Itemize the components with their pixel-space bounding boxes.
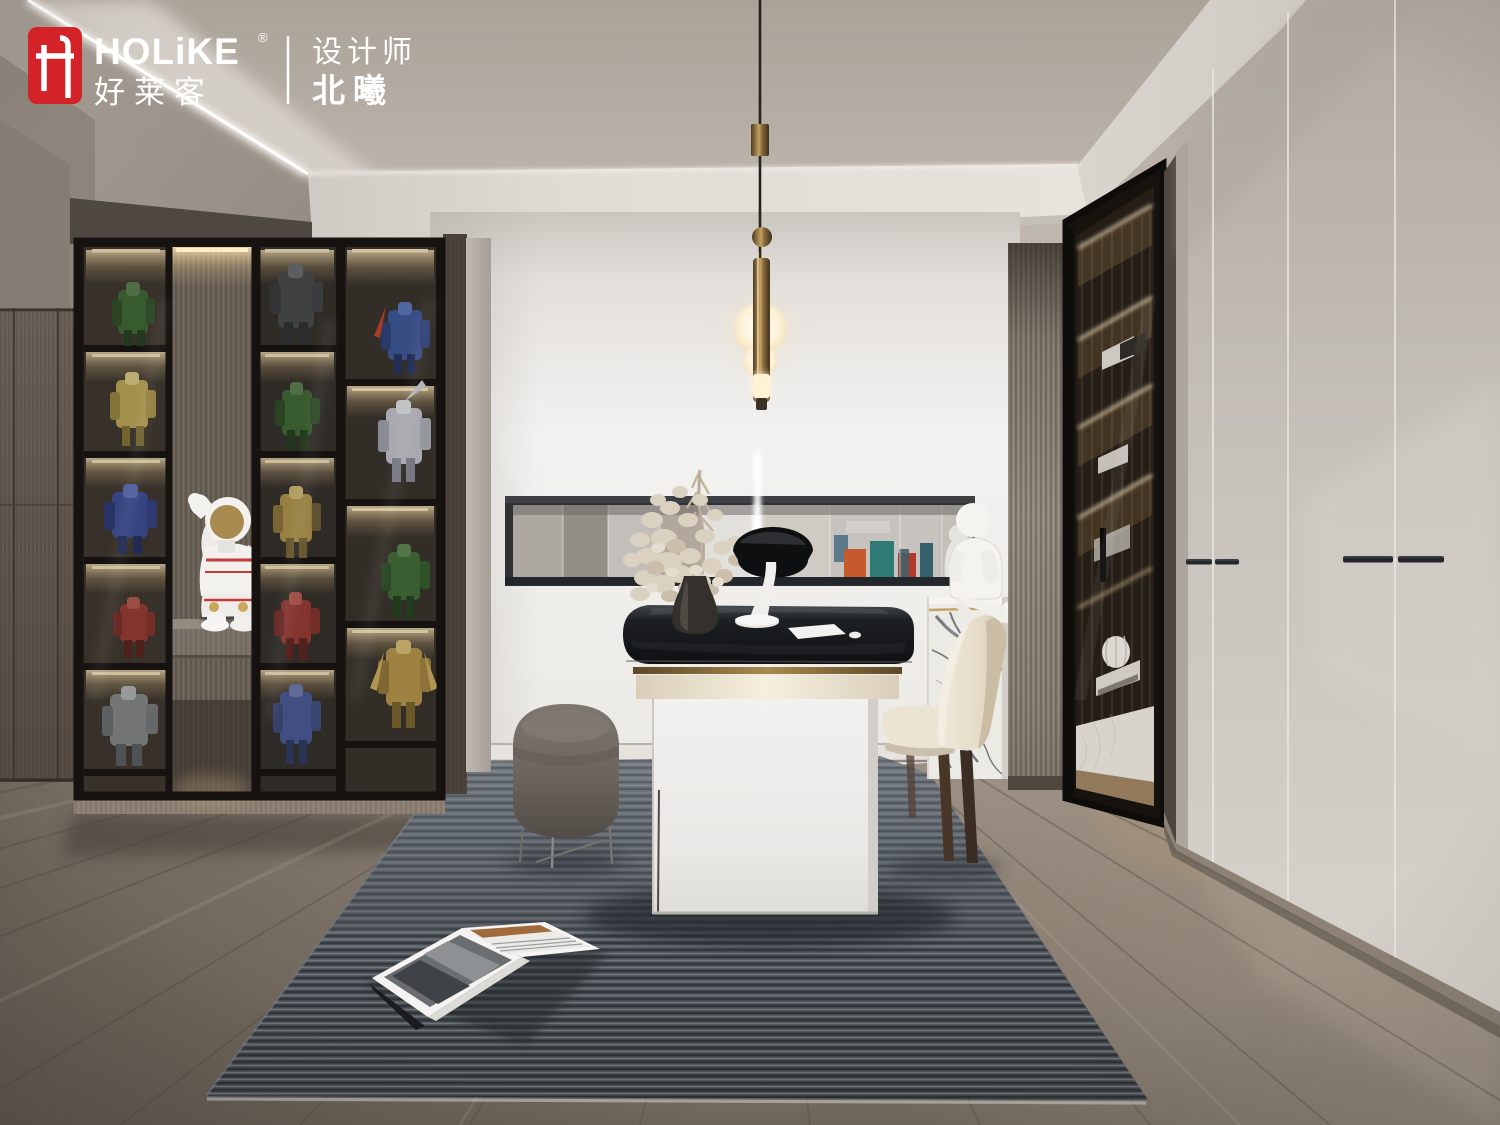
svg-text:®: ®	[258, 30, 268, 45]
svg-text:好莱客: 好莱客	[94, 75, 214, 110]
svg-text:HOLiKE: HOLiKE	[94, 31, 240, 72]
svg-text:北曦: 北曦	[312, 72, 394, 109]
svg-text:设计师: 设计师	[312, 36, 417, 69]
